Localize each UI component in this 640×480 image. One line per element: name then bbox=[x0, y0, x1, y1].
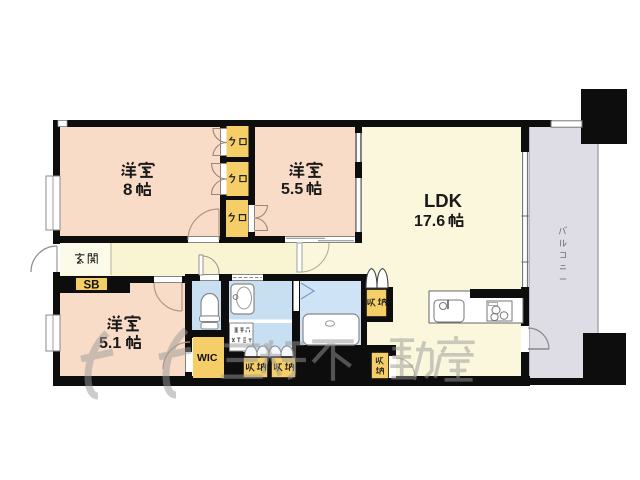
svg-text:5.5: 5.5 bbox=[281, 181, 303, 198]
svg-text:17.6: 17.6 bbox=[414, 213, 445, 230]
svg-text:8: 8 bbox=[123, 180, 132, 199]
svg-text:WIC: WIC bbox=[197, 352, 218, 364]
svg-text:SB: SB bbox=[84, 280, 100, 292]
svg-text:LDK: LDK bbox=[424, 190, 463, 211]
